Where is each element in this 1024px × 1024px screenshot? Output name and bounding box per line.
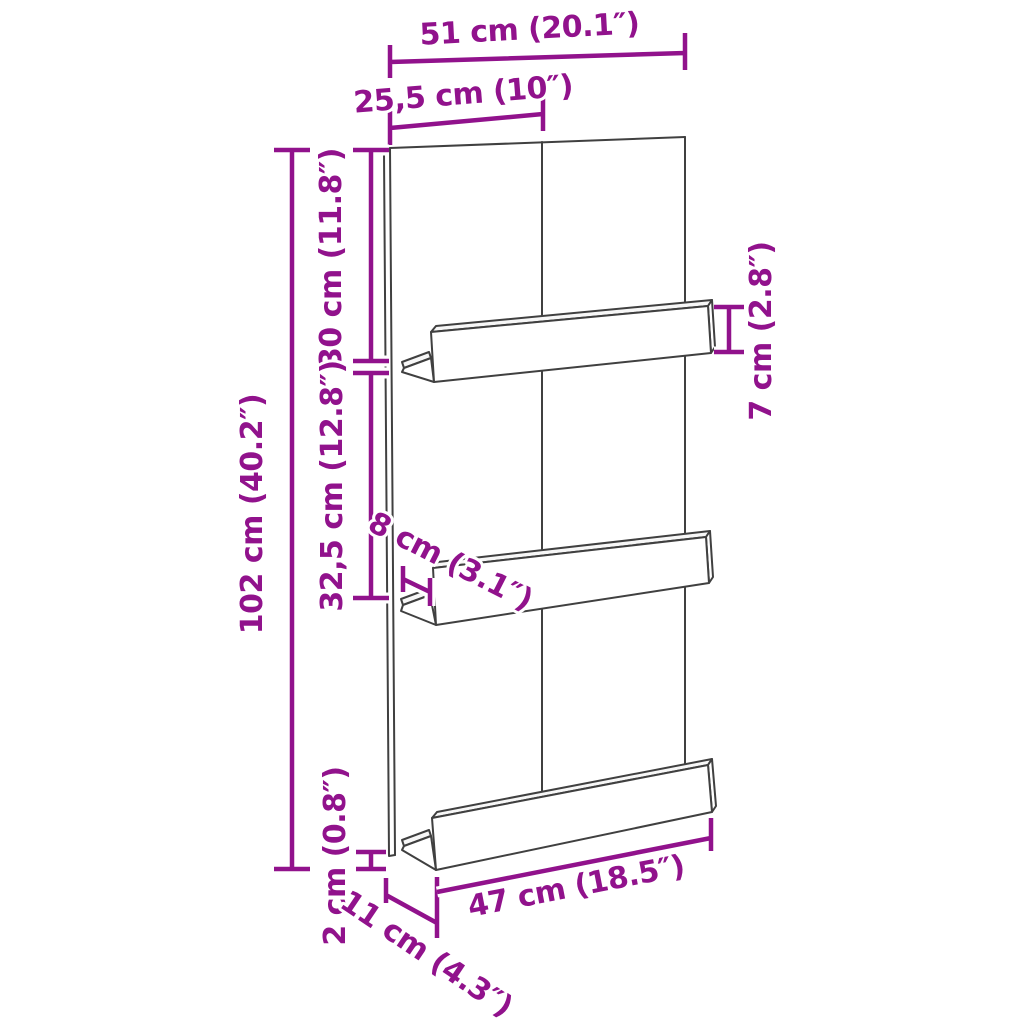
dim-ledge-height-line bbox=[714, 307, 744, 352]
dim-top-offset-label: 30 cm (11.8″) bbox=[314, 148, 349, 368]
dim-half-width: 25,5 cm (10″) bbox=[352, 68, 574, 145]
furniture-outline bbox=[384, 137, 716, 870]
dim-total-height: 102 cm (40.2″) bbox=[235, 150, 310, 869]
dim-total-width: 51 cm (20.1″) bbox=[390, 6, 685, 78]
dim-ledge-height-label: 7 cm (2.8″) bbox=[744, 241, 779, 420]
shelf-dimension-diagram: 51 cm (20.1″) 25,5 cm (10″) 30 cm (11.8″… bbox=[0, 0, 1024, 1024]
dim-total-height-label: 102 cm (40.2″) bbox=[235, 394, 270, 634]
dim-total-width-label: 51 cm (20.1″) bbox=[419, 6, 641, 52]
wall-panel-face bbox=[390, 137, 685, 856]
dim-total-height-line bbox=[274, 150, 310, 869]
dim-shelf-spacing-line bbox=[353, 373, 389, 598]
dim-ledge-height: 7 cm (2.8″) bbox=[714, 241, 779, 420]
dim-top-offset: 30 cm (11.8″) bbox=[314, 148, 389, 368]
wall-panel bbox=[384, 137, 685, 856]
dim-shelf-spacing-label: 32,5 cm (12.8″) bbox=[315, 360, 350, 611]
dim-shelf-spacing: 32,5 cm (12.8″) bbox=[315, 360, 389, 611]
